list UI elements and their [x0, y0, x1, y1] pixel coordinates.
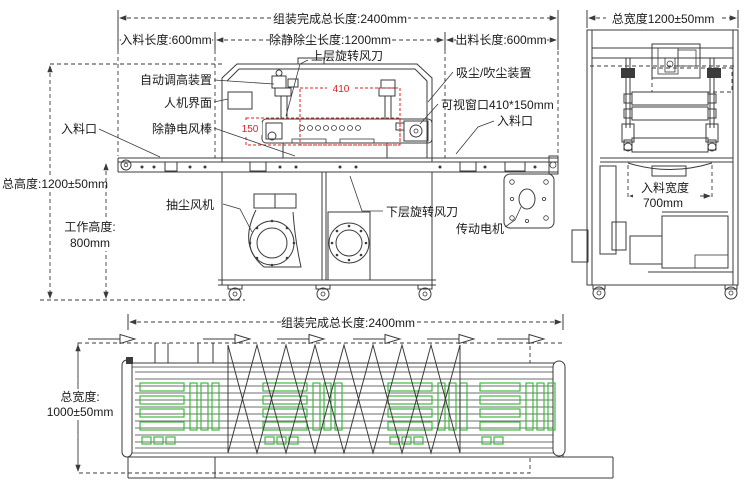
label-hmi: 人机界面 [164, 96, 212, 110]
drive-motor-plate [504, 174, 554, 228]
top-width-dim: 总宽度: 1000±50mm [47, 345, 114, 471]
side-air-knife-rollers [624, 92, 716, 152]
air-knife-beam [262, 119, 432, 158]
dim-work-height-value: 800mm [70, 236, 110, 250]
label-infeed-port-right: 入料口 [497, 114, 533, 128]
dim-total-height: 总高度:1200±50mm [2, 176, 108, 191]
dim-side-total-width: 总宽度1200±50mm [612, 11, 715, 26]
label-upper-air-knife: 上层旋转风刀 [311, 48, 383, 63]
dim-window-height: 150 [242, 124, 259, 135]
flow-arrows [88, 335, 544, 344]
dim-clean-length: 除静除尘长度:1200mm [269, 32, 391, 47]
dim-top-total-width-label: 总宽度: [60, 389, 99, 404]
dim-top-total-length: 组装完成总长度:2400mm [281, 315, 415, 330]
round-fan [328, 212, 370, 280]
caster-wheels-front [228, 285, 432, 300]
label-lower-air-knife: 下层旋转风刀 [386, 204, 458, 219]
hmi-panel[interactable] [228, 92, 252, 109]
side-outlet-box [572, 230, 588, 262]
side-dimension-lines: 总宽度1200±50mm [587, 10, 738, 28]
front-callouts: 自动调高装置 人机界面 入料口 除静电风棒 上层旋转风刀 吸尘/吹尘装置 可视窗… [61, 48, 554, 236]
left-belt-roller [122, 360, 132, 457]
dim-infeed-length: 入料长度:600mm [120, 32, 211, 47]
dim-infeed-width-value: 700mm [643, 196, 683, 210]
top-view: 组装完成总长度:2400mm 总宽度: 1000±50mm [47, 314, 613, 478]
outfeed-table [128, 457, 613, 478]
diagram-canvas: 组装完成总长度:2400mm 入料长度:600mm 除静除尘长度:1200mm … [0, 0, 750, 490]
camera-module [404, 121, 428, 141]
lower-cabinet [218, 172, 436, 300]
side-view: 总宽度1200±50mm [572, 10, 738, 299]
dim-top-total-width-value: 1000±50mm [47, 405, 114, 419]
dim-total-length: 组装完成总长度:2400mm [273, 11, 407, 26]
top-belt [122, 345, 613, 478]
label-auto-height-device: 自动调高装置 [140, 72, 212, 87]
right-screw-post [379, 80, 395, 119]
auto-height-device [272, 70, 298, 119]
label-viewing-window: 可视窗口410*150mm [441, 97, 554, 112]
front-view: 组装完成总长度:2400mm 入料长度:600mm 除静除尘长度:1200mm … [0, 10, 558, 300]
conveyor-belt [118, 156, 558, 228]
technical-drawing-page: 组装完成总长度:2400mm 入料长度:600mm 除静除尘长度:1200mm … [0, 0, 750, 490]
dim-outfeed-length: 出料长度:600mm [455, 32, 546, 47]
top-dimension-lines: 组装完成总长度:2400mm [128, 314, 563, 330]
dim-infeed-width-label: 入料宽度 [641, 180, 689, 195]
label-static-bar: 除静电风棒 [152, 121, 212, 136]
dim-window-width: 410 [333, 84, 350, 95]
side-belt-section [600, 158, 733, 176]
dust-extraction-blower [249, 194, 301, 267]
side-infeed-width-dim: 入料宽度 700mm [628, 165, 712, 210]
height-adjust-gearbox [652, 44, 700, 78]
dim-work-height-label: 工作高度: [64, 219, 115, 234]
label-suction-blow: 吸尘/吹尘装置 [456, 66, 531, 80]
side-duct [600, 166, 616, 254]
caster-wheels-side [593, 285, 737, 299]
label-infeed-port-left: 入料口 [61, 122, 97, 136]
label-dust-extraction-fan: 抽尘风机 [166, 198, 214, 212]
label-drive-motor: 传动电机 [456, 221, 504, 236]
